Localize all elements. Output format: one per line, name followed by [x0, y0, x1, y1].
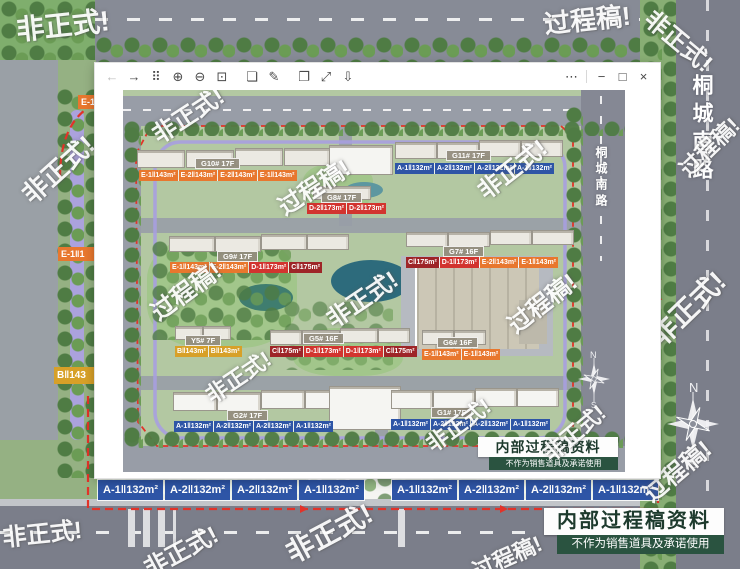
unit-chip-row: A-1‖132m²A-2‖132m²A-2‖132m²A-1‖132m² [395, 163, 554, 174]
unit-chip-row: C‖175m²D-1‖173m²E-2‖143m²E-1‖143m² [406, 257, 558, 268]
window-controls: ⋯ − □ × [561, 63, 654, 90]
zoom-in-icon[interactable]: ⊕ [167, 69, 189, 85]
unit-chip: D-1‖173m² [344, 346, 383, 357]
building-slab [340, 328, 378, 343]
photo-viewer-window: ← → ⠿ ⊕ ⊖ ⊡ ❏ ✎ ❐ ⤢ ⇩ ⋯ − □ × [95, 63, 660, 478]
street-name-inset: 桐城南路 [593, 146, 610, 210]
building-slab [215, 236, 261, 252]
building-slab [521, 140, 563, 157]
compass-rose-inset: N S [571, 348, 617, 410]
unit-chip: C‖175m² [289, 262, 322, 273]
actual-size-icon[interactable]: ⊡ [211, 69, 233, 85]
unit-chip: A-2‖132m² [232, 480, 297, 500]
zoom-out-icon[interactable]: ⊖ [189, 69, 211, 85]
svg-text:N: N [689, 380, 698, 395]
inset-top-road-line [123, 109, 625, 111]
building-slab [270, 330, 302, 345]
unit-chip: A-1‖132m² [98, 480, 163, 500]
building-label: G7# 16F [443, 246, 484, 257]
unit-chip: B‖143m² [175, 346, 208, 357]
notice-title-inset: 内部过程稿资料 [478, 437, 618, 457]
unit-chip: A-2‖132m² [459, 480, 524, 500]
unit-chip: E-1‖143m² [422, 349, 461, 360]
unit-chip: A-2‖132m² [431, 419, 470, 430]
building-slab [261, 234, 307, 250]
unit-chip: D-2‖173m² [307, 203, 346, 214]
unit-chip: A-1‖132m² [294, 421, 333, 432]
building-slab [475, 388, 517, 407]
unit-chip: E-2‖143m² [218, 170, 257, 181]
commercial-annex [519, 300, 547, 344]
unit-chip: A-1‖132m² [299, 480, 364, 500]
back-icon[interactable]: ← [101, 69, 123, 84]
more-icon[interactable]: ⋯ [561, 69, 582, 85]
unit-chip: C‖175m² [384, 346, 417, 357]
inset-trees-top [123, 120, 625, 136]
pond [331, 260, 411, 302]
svg-text:S: S [591, 401, 596, 410]
unit-chip: C‖175m² [270, 346, 303, 357]
viewer-toolbar: ← → ⠿ ⊕ ⊖ ⊡ ❏ ✎ ❐ ⤢ ⇩ ⋯ − □ × [95, 63, 660, 90]
unit-chip-row: D-2‖173m²D-2‖173m² [307, 203, 386, 214]
unit-chip-row-bottom-right: A-1‖132m²A-2‖132m²A-2‖132m²A-1‖132m² [391, 479, 659, 501]
minimize-icon[interactable]: − [591, 69, 612, 84]
building-label: Y5# 7F [185, 335, 221, 346]
screenshot-root: 桐城南路 N S E-1 E-1‖1 B‖143 A-1‖132m²A-2‖13… [0, 0, 740, 569]
building-slab [517, 388, 559, 407]
outer-top-road-line [95, 18, 640, 21]
unit-chip: A-2‖132m² [475, 163, 514, 174]
crosswalk [128, 509, 176, 547]
unit-chip: A-2‖132m² [254, 421, 293, 432]
building-slab [448, 232, 490, 247]
building-slab [284, 148, 330, 166]
divider [586, 70, 587, 83]
svg-text:N: N [590, 350, 597, 360]
unit-chip: D-1‖173m² [440, 257, 479, 268]
building-label: G2# 17F [227, 410, 268, 421]
unit-chip-row: C‖175m²D-1‖173m²D-1‖173m²C‖175m² [270, 346, 417, 357]
building-label: G8# 17F [321, 192, 362, 203]
notice-subtitle-outer: 不作为销售道具及承诺使用 [557, 535, 724, 554]
close-icon[interactable]: × [633, 69, 654, 84]
unit-chip: E-1‖143m² [519, 257, 558, 268]
unit-chip: A-2‖132m² [435, 163, 474, 174]
edit-icon[interactable]: ✎ [263, 69, 285, 85]
unit-chip: A-2‖132m² [471, 419, 510, 430]
maximize-icon[interactable]: □ [612, 69, 633, 84]
thumbnails-icon[interactable]: ⠿ [145, 69, 167, 85]
unit-chip-row-bottom-left: A-1‖132m²A-2‖132m²A-2‖132m²A-1‖132m² [97, 479, 365, 501]
unit-chip: E-1‖143m² [258, 170, 297, 181]
unit-chip: E-2‖143m² [210, 262, 249, 273]
copy-icon[interactable]: ❐ [293, 69, 315, 85]
notice-subtitle-inset: 不作为销售道具及承诺使用 [489, 457, 618, 470]
svg-text:S: S [690, 459, 697, 470]
crosswalk [398, 509, 412, 547]
fullscreen-icon[interactable]: ⤢ [315, 69, 337, 85]
unit-chip: B‖143m² [209, 346, 242, 357]
outer-left-road [0, 60, 58, 440]
building-slab [173, 392, 217, 411]
unit-chip: A-2‖132m² [526, 480, 591, 500]
unit-chip: D-1‖173m² [304, 346, 343, 357]
building-slab [169, 236, 215, 252]
building-slab [490, 230, 532, 245]
building-slab [532, 230, 574, 245]
unit-chip-row: A-1‖132m²A-2‖132m²A-2‖132m²A-1‖132m² [174, 421, 333, 432]
unit-chip: A-2‖132m² [165, 480, 230, 500]
building-slab [235, 148, 283, 166]
building-slab [406, 232, 448, 247]
building-slab [137, 150, 185, 168]
unit-chip-row: E-1‖143m²E-1‖143m² [422, 349, 500, 360]
unit-chip: A-2‖132m² [214, 421, 253, 432]
forward-icon[interactable]: → [123, 69, 145, 84]
folder-icon[interactable]: ❏ [241, 69, 263, 85]
notice-title-outer: 内部过程稿资料 [544, 508, 724, 535]
building-label: G10# 17F [195, 158, 240, 169]
building-slab [378, 328, 410, 343]
unit-chip: A-1‖132m² [391, 419, 430, 430]
building-slab [217, 392, 261, 411]
unit-chip: E-2‖143m² [480, 257, 519, 268]
unit-chip: E-1‖143m² [462, 349, 501, 360]
unit-chip: A-1‖132m² [515, 163, 554, 174]
unit-chip: D-1‖173m² [249, 262, 288, 273]
unit-chip: E-1‖143m² [170, 262, 209, 273]
building-label: G1# 17F [431, 407, 472, 418]
unit-chip: A-1‖132m² [174, 421, 213, 432]
unit-chip: E-2‖143m² [179, 170, 218, 181]
building-label: G9# 17F [217, 251, 258, 262]
save-icon[interactable]: ⇩ [337, 69, 359, 85]
unit-chip: A-1‖132m² [593, 480, 658, 500]
unit-chip-row: A-1‖132m²A-2‖132m²A-2‖132m²A-1‖132m² [391, 419, 550, 430]
building-slab [261, 390, 305, 409]
outer-top-road-trees [95, 36, 640, 64]
site-plan-photo: G10# 17F E-1‖143m²E-2‖143m²E-2‖143m²E-1‖… [123, 90, 625, 472]
unit-chip: C‖175m² [406, 257, 439, 268]
unit-chip: D-2‖173m² [347, 203, 386, 214]
compass-rose-outer: N S [656, 378, 730, 470]
unit-chip-row: E-1‖143m²E-2‖143m²D-1‖173m²C‖175m² [170, 262, 322, 273]
building-label: G6# 16F [437, 337, 478, 348]
unit-chip-row: E-1‖143m²E-2‖143m²E-2‖143m²E-1‖143m² [139, 170, 297, 181]
unit-chip: E-1‖143m² [139, 170, 178, 181]
unit-chip-row: B‖143m²B‖143m² [175, 346, 242, 357]
building-label: G5# 16F [303, 333, 344, 344]
street-name-outer: 桐城南路 [686, 74, 716, 186]
unit-chip: A-1‖132m² [392, 480, 457, 500]
unit-chip: A-1‖132m² [395, 163, 434, 174]
building-slab [395, 142, 437, 159]
amenity-building [329, 145, 393, 175]
building-label: G11# 17F [446, 150, 491, 161]
building-slab [391, 390, 433, 409]
outer-left-trees [56, 88, 96, 478]
building-slab [307, 234, 349, 250]
unit-chip: A-1‖132m² [511, 419, 550, 430]
